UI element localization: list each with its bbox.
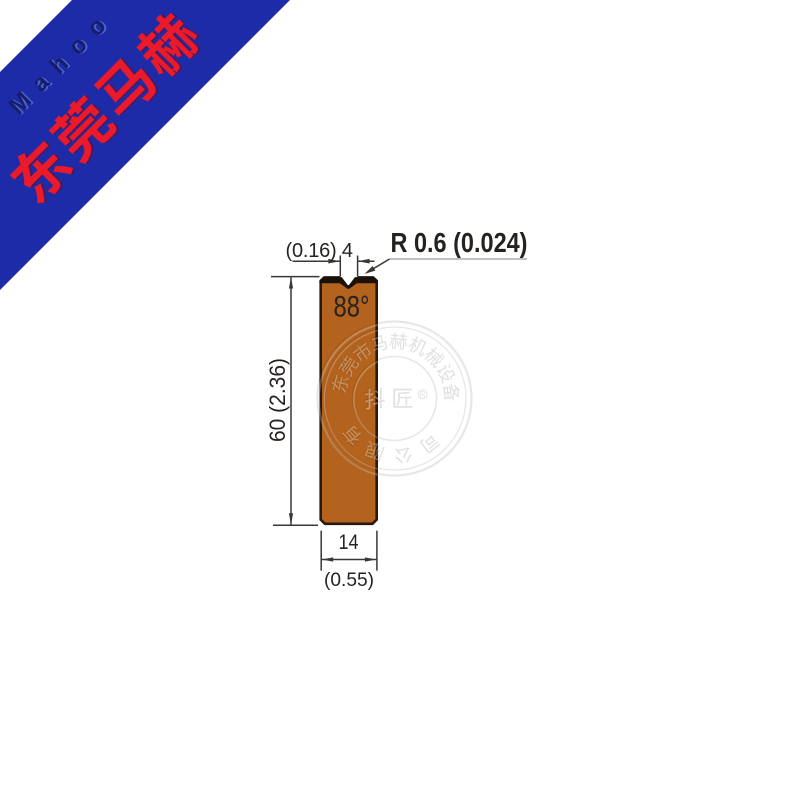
svg-text:(0.16) 4: (0.16) 4	[286, 240, 354, 262]
svg-text:R: R	[420, 390, 426, 399]
svg-text:R 0.6 (0.024): R 0.6 (0.024)	[391, 227, 528, 258]
svg-text:88°: 88°	[334, 291, 370, 324]
svg-text:14: 14	[339, 531, 359, 554]
svg-text:60 (2.36): 60 (2.36)	[265, 358, 290, 442]
svg-text:(0.55): (0.55)	[324, 569, 374, 591]
